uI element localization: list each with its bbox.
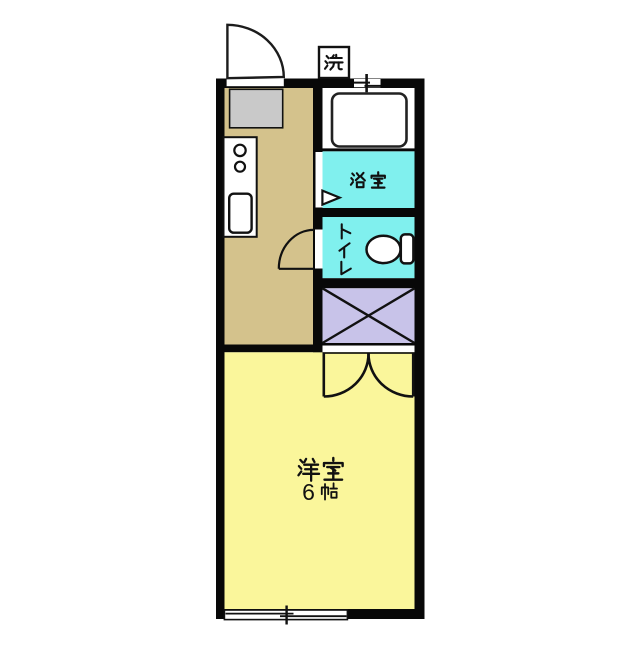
svg-text:6: 6	[302, 479, 315, 505]
